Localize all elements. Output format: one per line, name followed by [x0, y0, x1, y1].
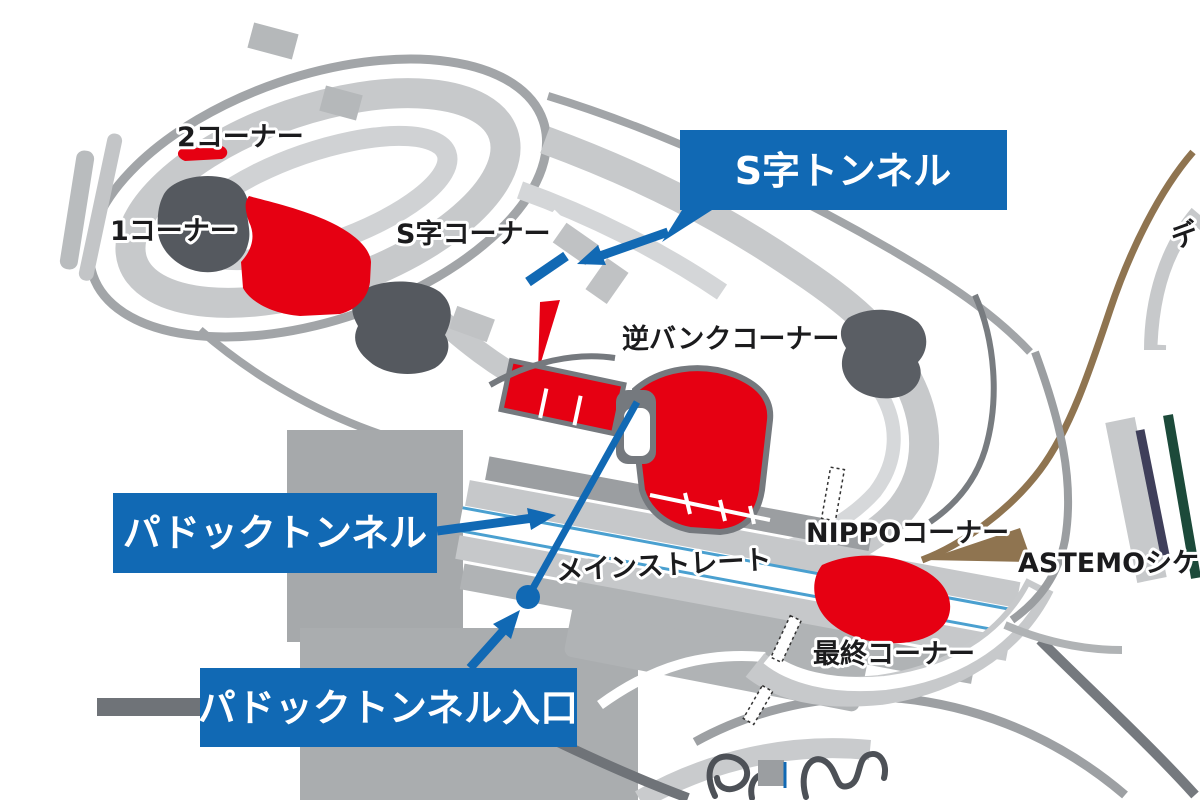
label-reverse-bank: 逆バンクコーナー	[622, 323, 839, 355]
circuit-map-page: S字トンネル パドックトンネル パドックトンネル入口 2コーナー 1コーナー S…	[0, 0, 1200, 800]
paddock-tunnel-entrance-dot	[516, 585, 540, 609]
building-kart	[758, 760, 784, 786]
label-s-curves: S字コーナー	[396, 218, 550, 250]
s-tunnel-callout-label: S字トンネル	[735, 149, 952, 193]
label-final-corner: 最終コーナー	[813, 638, 975, 670]
label-astemo-chicane: ASTEMOシケ	[1018, 548, 1199, 579]
paddock-tunnel-entrance-callout-label: パドックトンネル入口	[198, 686, 578, 730]
label-corner2: 2コーナー	[177, 122, 304, 153]
paddock-tunnel-callout-label: パドックトンネル	[123, 511, 427, 555]
label-nippo: NIPPOコーナー	[806, 518, 1009, 549]
structure-reverse-bank	[841, 310, 926, 399]
label-corner1: 1コーナー	[110, 216, 237, 247]
circuit-map: S字トンネル パドックトンネル パドックトンネル入口 2コーナー 1コーナー S…	[0, 0, 1200, 800]
